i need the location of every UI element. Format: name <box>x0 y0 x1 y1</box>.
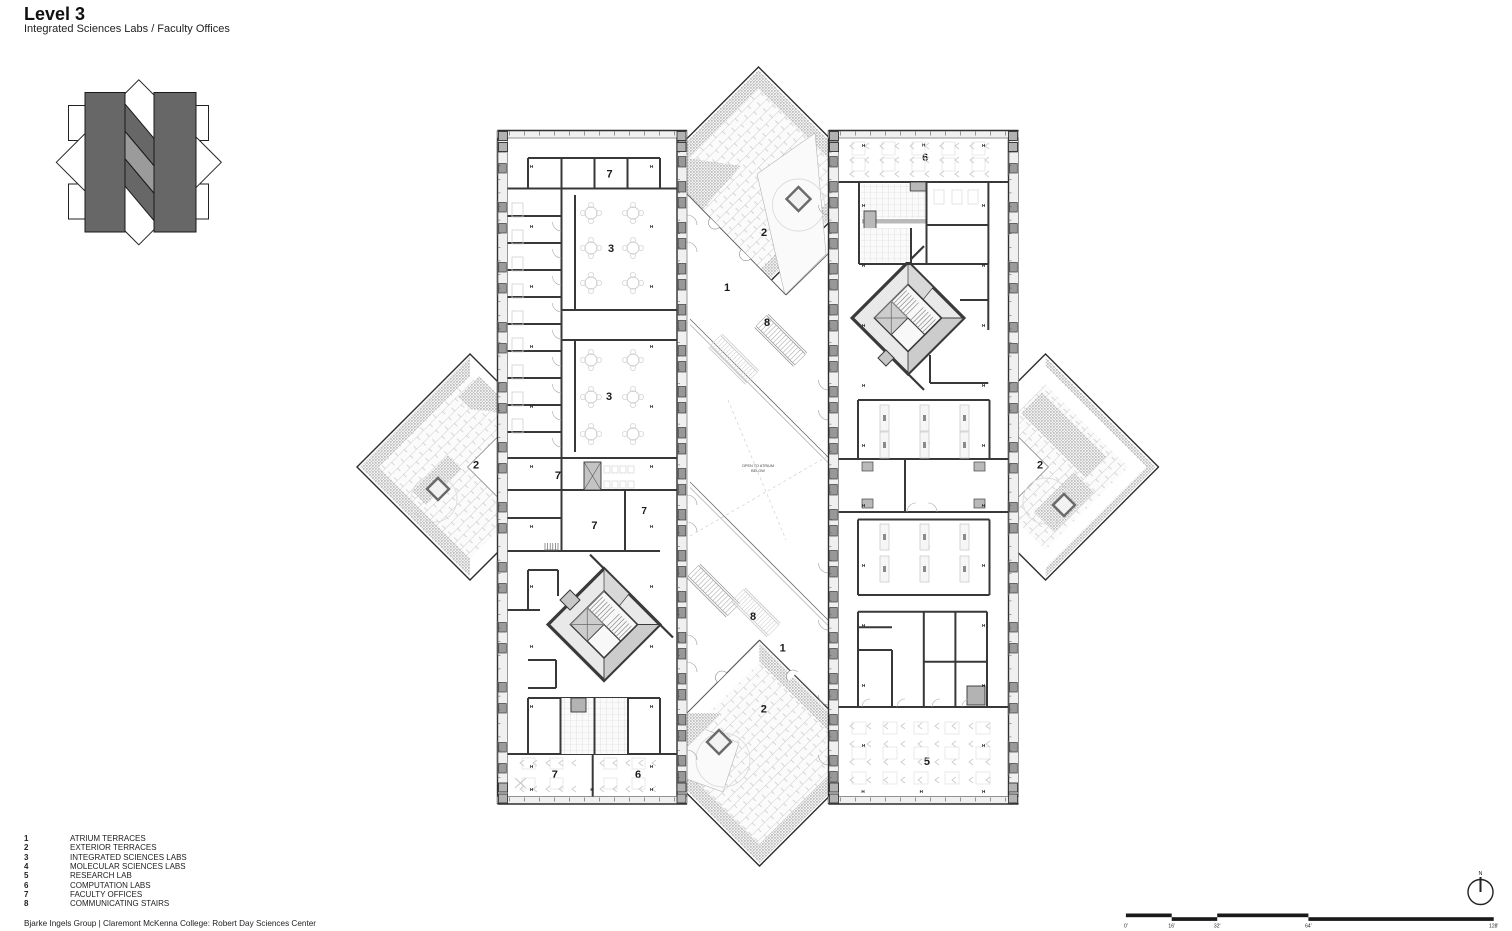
svg-text:7: 7 <box>591 520 597 532</box>
svg-text:16': 16' <box>1168 924 1175 930</box>
svg-text:2: 2 <box>761 704 767 716</box>
svg-text:7: 7 <box>641 506 647 517</box>
svg-text:0': 0' <box>1124 924 1128 930</box>
svg-text:1: 1 <box>780 643 786 655</box>
svg-text:7: 7 <box>606 169 612 181</box>
svg-text:8: 8 <box>764 317 770 329</box>
svg-text:7: 7 <box>552 769 558 781</box>
svg-text:128': 128' <box>1489 924 1498 930</box>
svg-text:2: 2 <box>473 460 479 472</box>
svg-text:5: 5 <box>924 756 930 768</box>
svg-text:8: 8 <box>750 611 756 623</box>
svg-text:32': 32' <box>1214 924 1221 930</box>
svg-text:64': 64' <box>1305 924 1312 930</box>
svg-text:7: 7 <box>555 470 561 482</box>
svg-text:3: 3 <box>608 243 614 255</box>
svg-text:3: 3 <box>606 391 612 403</box>
svg-text:1: 1 <box>724 282 730 294</box>
svg-text:2: 2 <box>1037 460 1043 472</box>
svg-text:BELOW: BELOW <box>751 469 765 473</box>
svg-text:6: 6 <box>635 769 641 781</box>
svg-text:2: 2 <box>761 227 767 239</box>
svg-text:OPEN TO ATRIUM: OPEN TO ATRIUM <box>742 464 774 468</box>
svg-text:N: N <box>1479 871 1483 877</box>
